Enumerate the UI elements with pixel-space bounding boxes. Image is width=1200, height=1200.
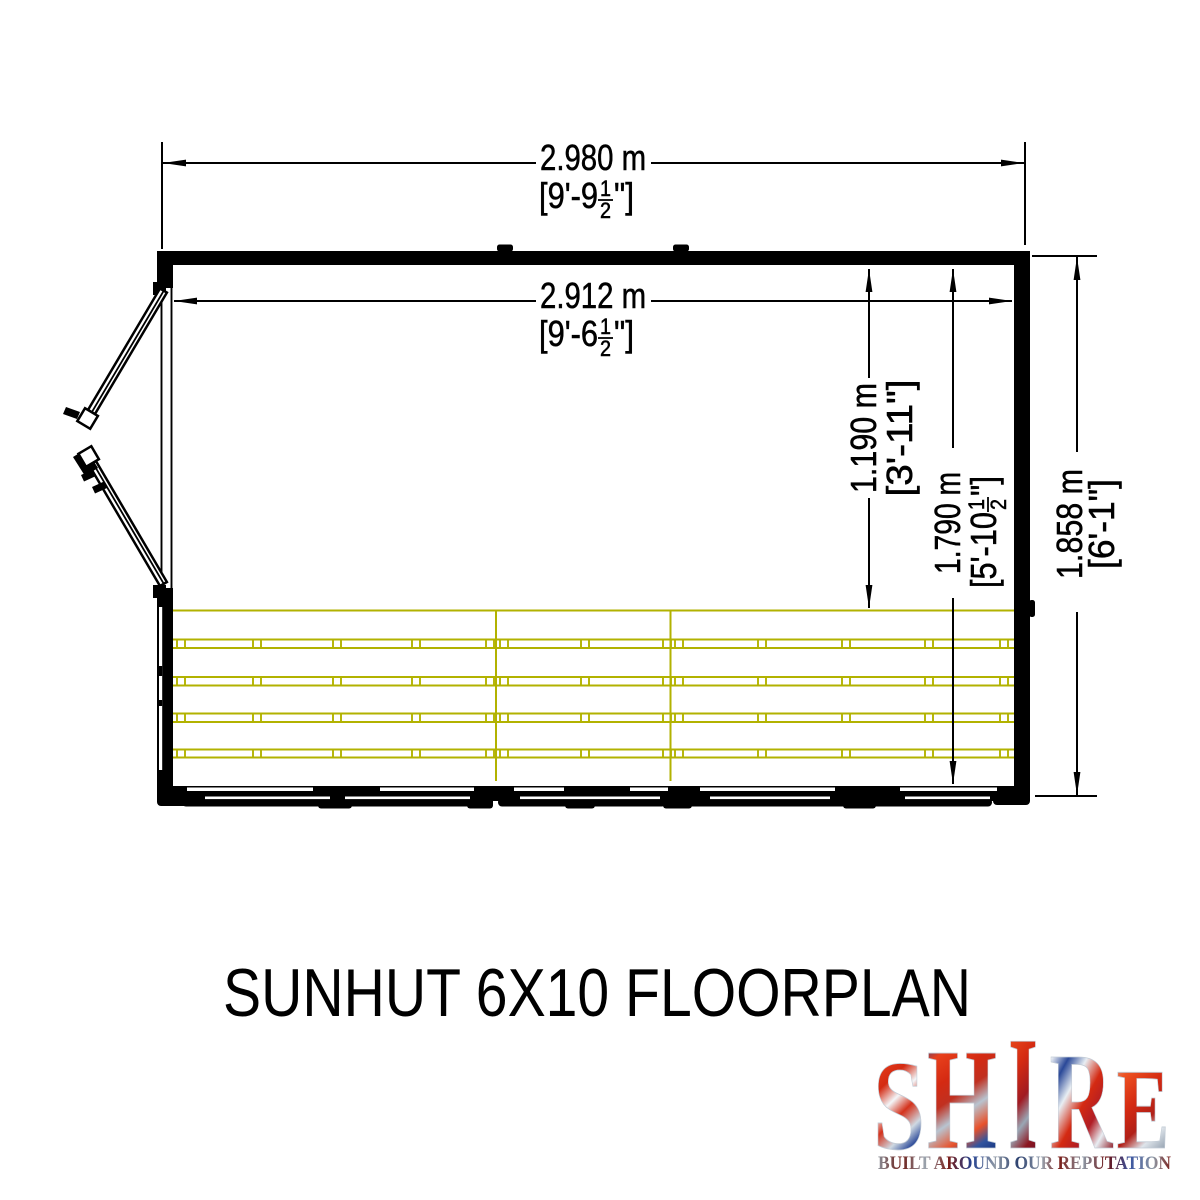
svg-text:"]: "]	[963, 476, 1004, 496]
svg-text:[9'-9: [9'-9	[539, 175, 598, 216]
svg-text:1.190 m: 1.190 m	[843, 383, 884, 493]
svg-text:1.790 m: 1.790 m	[927, 472, 968, 574]
svg-text:[6'-1"]: [6'-1"]	[1081, 479, 1122, 569]
svg-text:2: 2	[600, 336, 611, 361]
svg-text:BUILT AROUND OUR REPUTATION: BUILT AROUND OUR REPUTATION	[878, 1153, 1171, 1174]
svg-text:[5'-10: [5'-10	[963, 512, 1004, 588]
svg-text:[3'-11"]: [3'-11"]	[879, 380, 920, 497]
svg-text:"]: "]	[614, 175, 634, 216]
svg-text:2: 2	[600, 198, 611, 223]
svg-text:"]: "]	[614, 313, 634, 354]
svg-text:[9'-6: [9'-6	[539, 313, 598, 354]
svg-text:2: 2	[986, 499, 1011, 510]
svg-text:2.912 m: 2.912 m	[540, 275, 646, 316]
svg-text:SUNHUT 6X10 FLOORPLAN: SUNHUT 6X10 FLOORPLAN	[223, 955, 971, 1031]
svg-text:2.980 m: 2.980 m	[540, 137, 646, 178]
